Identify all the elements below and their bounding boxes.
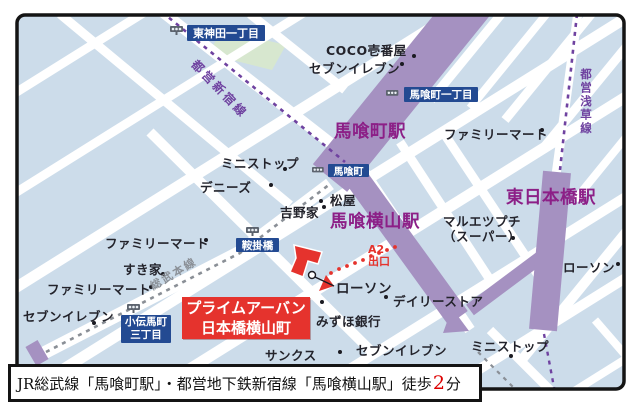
exit-line2: 出口 — [368, 256, 390, 268]
poi-lawson-center: ローソン — [336, 277, 392, 297]
station-label-higashi-nihombashi: 東日本橋駅 — [506, 184, 596, 209]
poi-ministop-bottom: ミニストップ — [471, 336, 549, 355]
area-box-kodemmacho-3chome: 小伝馬町 三丁目 — [121, 315, 171, 343]
route-map: 馬喰町駅 馬喰横山駅 東日本橋駅 都営新宿線 都営浅草線 総武本線 東神田一丁目… — [0, 0, 640, 411]
property-name-box: プライムアーバン 日本橋横山町 — [182, 297, 310, 339]
poi-sukiya: すき家 — [123, 259, 162, 278]
exit-a2-label: A2 出口 — [368, 244, 390, 268]
poi-familymart-lower: ファミリーマート — [47, 279, 151, 298]
area-box-higashi-kanda: 東神田一丁目 — [187, 25, 265, 41]
access-info-bar: JR総武線「馬喰町駅」・都営地下鉄新宿線「馬喰横山駅」徒歩2分 — [8, 364, 482, 402]
station-label-bakuro-yokoyama: 馬喰横山駅 — [330, 208, 420, 233]
property-name-line1: プライムアーバン — [182, 298, 310, 318]
poi-yoshinoya: 吉野家 — [280, 202, 319, 221]
poi-coco-ichibanya: COCO壱番屋 — [326, 40, 407, 59]
poi-dennys: デニーズ — [200, 177, 251, 196]
poi-sunkus: サンクス — [265, 345, 317, 364]
poi-maruetsu-line2: （スーパー） — [443, 229, 521, 244]
poi-maruetsu-line1: マルエツプチ — [443, 214, 521, 229]
poi-maruetsu-petit: マルエツプチ （スーパー） — [443, 214, 521, 244]
access-text-suffix: 分 — [446, 373, 461, 394]
poi-familymart-mid: ファミリーマート — [105, 233, 209, 252]
poi-seven-eleven-top: セブンイレブン — [309, 58, 400, 77]
property-name-line2: 日本橋横山町 — [182, 318, 310, 338]
station-label-bakurocho: 馬喰町駅 — [334, 118, 406, 143]
poi-seven-eleven-left: セブンイレブン — [23, 306, 114, 325]
poi-familymart-top: ファミリーマート — [444, 124, 548, 143]
poi-lawson-right: ローソン — [563, 257, 615, 276]
access-text: JR総武線「馬喰町駅」・都営地下鉄新宿線「馬喰横山駅」徒歩 — [17, 373, 432, 394]
poi-daily-store: デイリーストア — [393, 291, 483, 310]
area-box-line2: 三丁目 — [130, 329, 162, 342]
area-box-kurakakebashi: 鞍掛橋 — [236, 238, 279, 252]
walk-minutes: 2 — [433, 372, 445, 394]
traffic-signal-icon — [312, 167, 324, 172]
line-label-toei-asakusa: 都営浅草線 — [578, 68, 594, 136]
traffic-signal-icon — [386, 90, 398, 96]
poi-ministop-left: ミニストップ — [221, 153, 299, 172]
area-box-line1: 小伝馬町 — [125, 316, 167, 329]
area-box-bakurocho: 馬喰町 — [328, 164, 369, 177]
poi-matsuya: 松屋 — [330, 190, 356, 209]
area-box-bakurocho-1chome: 馬喰町一丁目 — [404, 87, 478, 102]
poi-mizuho-bank: みずほ銀行 — [316, 311, 381, 330]
poi-seven-eleven-bottom: セブンイレブン — [356, 340, 447, 359]
entrance-circle — [309, 272, 316, 279]
